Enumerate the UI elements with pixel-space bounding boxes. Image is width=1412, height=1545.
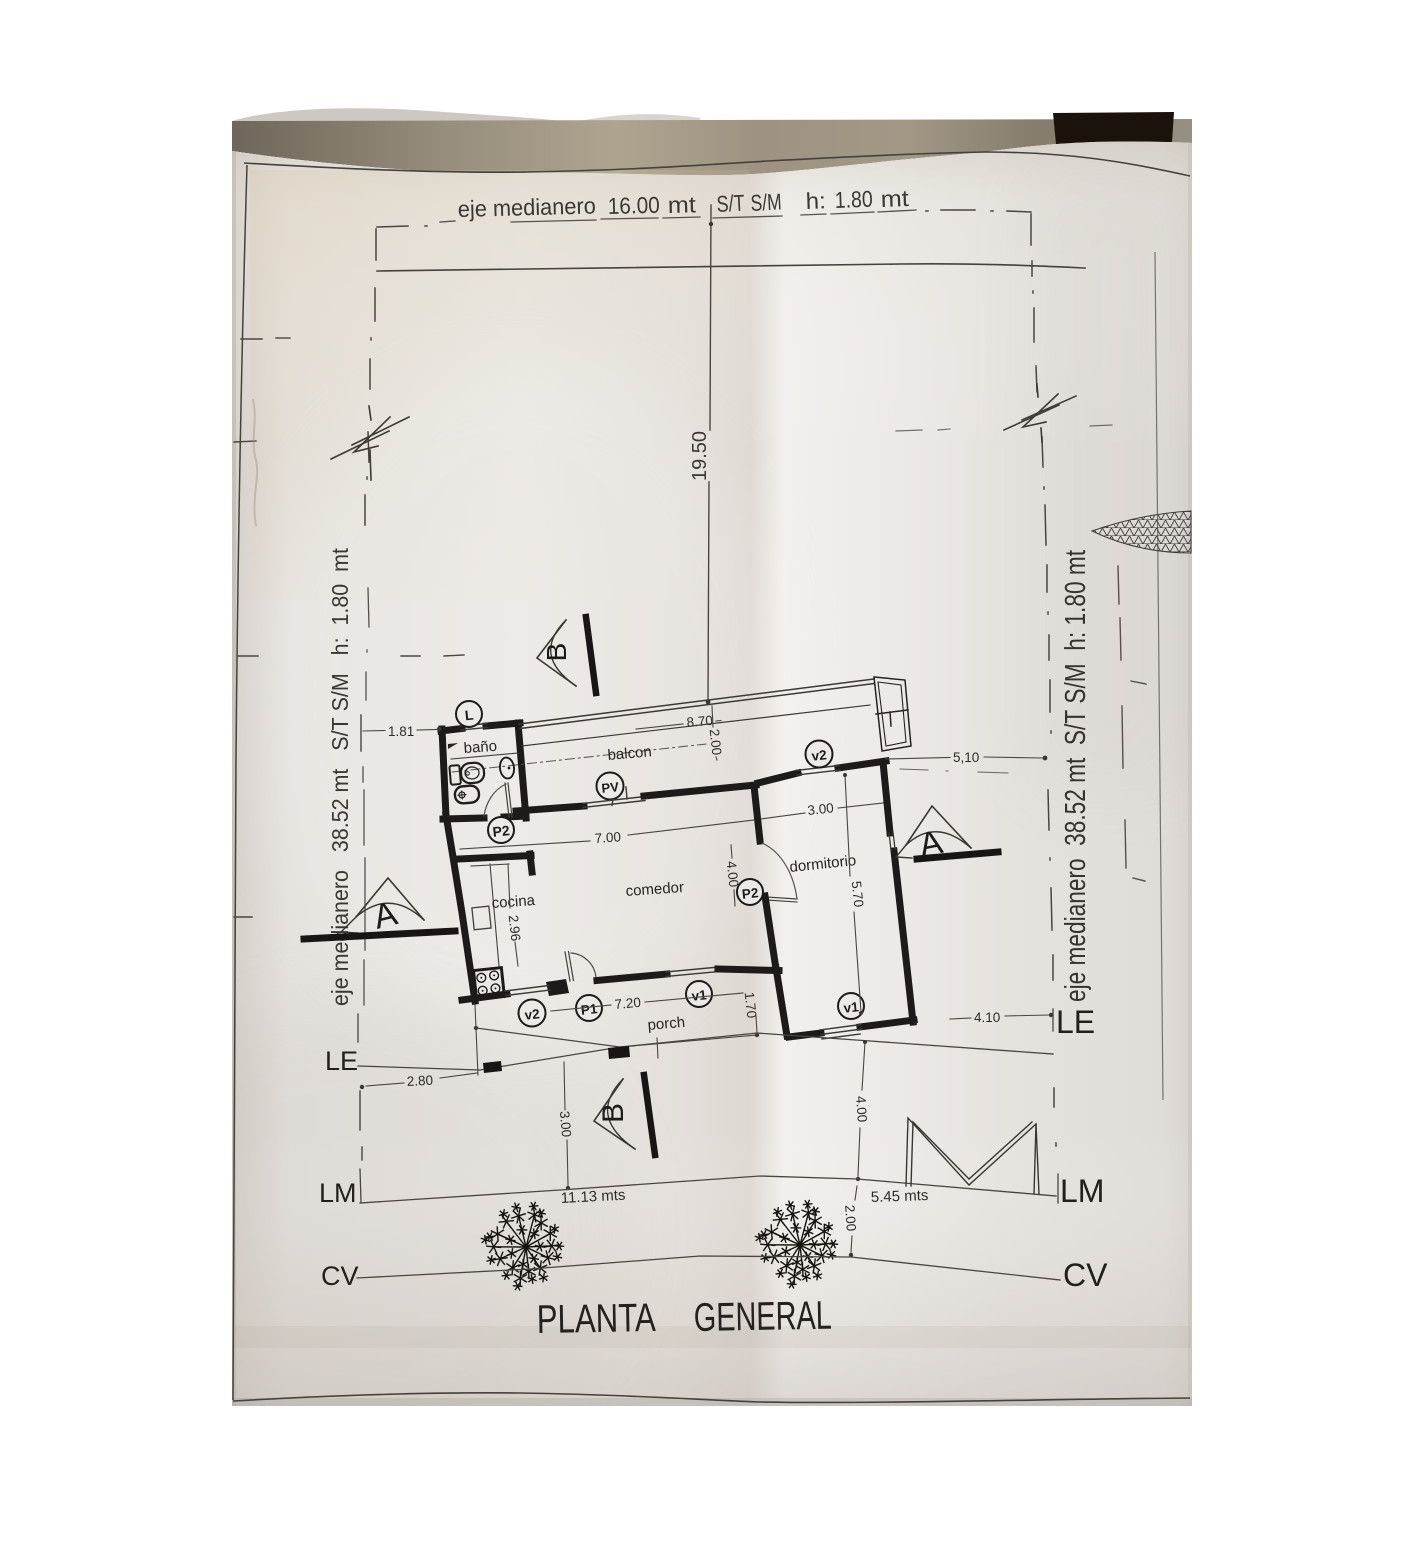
svg-text:PLANTA: PLANTA xyxy=(536,1296,656,1342)
svg-text:2.00: 2.00 xyxy=(707,728,725,756)
svg-text:eje medianero 38.52 mt S/T S: eje medianero 38.52 mt S/T S/M h: 1.80 m… xyxy=(1060,550,1092,1002)
svg-text:5.70: 5.70 xyxy=(849,880,867,908)
svg-text:CV: CV xyxy=(1063,1257,1108,1293)
svg-text:h:: h: xyxy=(805,187,826,214)
svg-text:1.70: 1.70 xyxy=(742,991,760,1019)
svg-text:7.00: 7.00 xyxy=(594,829,621,846)
svg-text:GENERAL: GENERAL xyxy=(693,1294,832,1340)
svg-text:1.81: 1.81 xyxy=(388,724,414,739)
svg-text:P1: P1 xyxy=(580,1001,598,1018)
svg-text:v2: v2 xyxy=(524,1006,541,1022)
svg-text:v1: v1 xyxy=(843,999,860,1016)
svg-text:4.10: 4.10 xyxy=(974,1010,1000,1025)
svg-text:5,10: 5,10 xyxy=(953,750,979,765)
svg-text:mt: mt xyxy=(880,185,910,212)
svg-text:eje medianero: eje medianero xyxy=(457,192,596,222)
svg-text:2.96: 2.96 xyxy=(506,914,524,942)
svg-text:cocina: cocina xyxy=(491,892,536,912)
svg-text:5.45 mts: 5.45 mts xyxy=(871,1187,929,1206)
svg-text:2.80: 2.80 xyxy=(406,1073,433,1089)
svg-text:LM: LM xyxy=(1060,1173,1104,1209)
svg-text:4.00: 4.00 xyxy=(724,860,742,888)
svg-text:S/T: S/T xyxy=(716,190,745,217)
svg-text:3.00: 3.00 xyxy=(557,1110,574,1137)
svg-text:2.00: 2.00 xyxy=(842,1204,859,1231)
svg-text:7.20: 7.20 xyxy=(614,995,641,1012)
svg-text:LM: LM xyxy=(319,1178,357,1208)
svg-text:8.70: 8.70 xyxy=(686,713,713,730)
svg-text:porch: porch xyxy=(647,1014,686,1034)
svg-text:baño: baño xyxy=(463,738,497,757)
svg-text:11.13 mts: 11.13 mts xyxy=(560,1187,626,1207)
svg-text:CV: CV xyxy=(321,1261,359,1291)
svg-text:LE: LE xyxy=(325,1046,358,1076)
svg-text:mt: mt xyxy=(667,191,696,218)
svg-text:P2: P2 xyxy=(741,885,759,902)
svg-text:v1: v1 xyxy=(691,987,708,1004)
svg-text:4.00: 4.00 xyxy=(853,1095,870,1122)
svg-text:B: B xyxy=(541,643,572,662)
svg-text:LE: LE xyxy=(1056,1004,1095,1040)
svg-text:16.00: 16.00 xyxy=(607,192,660,219)
svg-text:P2: P2 xyxy=(492,822,511,840)
svg-text:v2: v2 xyxy=(811,747,828,763)
svg-text:S/M: S/M xyxy=(750,188,782,216)
svg-text:19.50: 19.50 xyxy=(689,431,711,481)
svg-text:3.00: 3.00 xyxy=(807,800,835,818)
svg-text:B: B xyxy=(597,1103,630,1123)
svg-text:1.80: 1.80 xyxy=(834,186,873,213)
svg-text:PV: PV xyxy=(601,779,620,796)
